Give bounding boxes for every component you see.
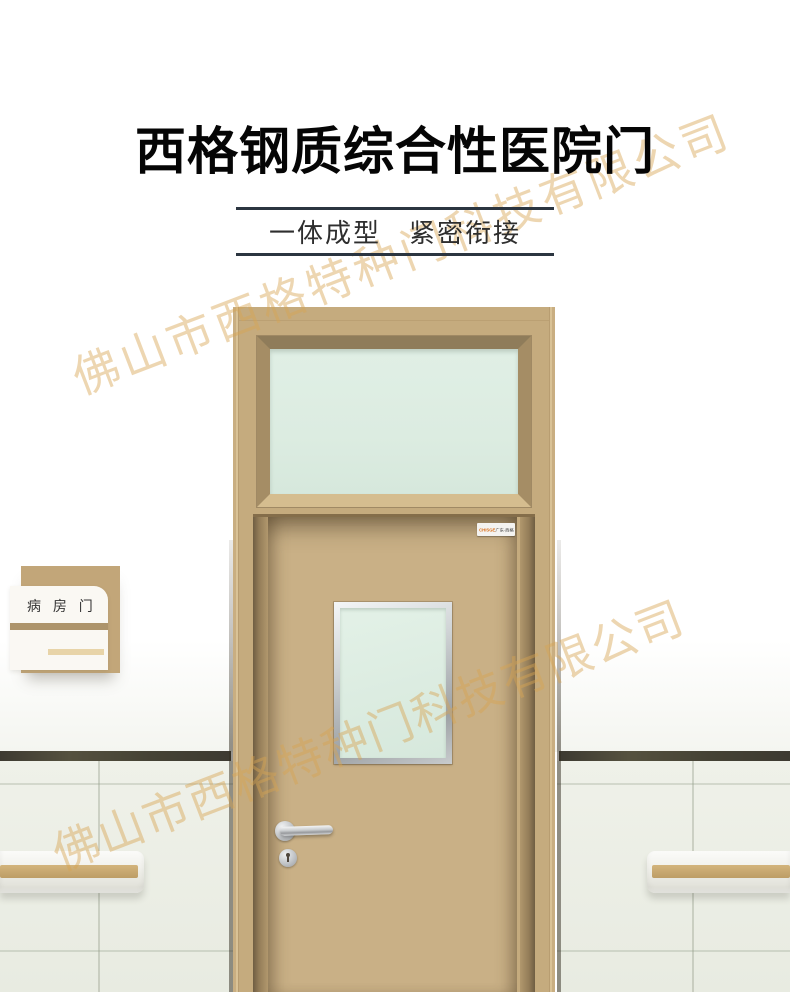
brand-plate-row: CHISGE广东·西格 bbox=[479, 523, 514, 534]
door-frame-wall-shadow-right bbox=[557, 540, 561, 992]
grout-line-horizontal bbox=[0, 950, 233, 952]
lock-escutcheon bbox=[279, 849, 297, 867]
transom-window-frame bbox=[257, 336, 531, 507]
page-canvas: 病 房 门 CHISGE广东·西格 ······· 佛山市西格特种门科技有限公司… bbox=[0, 0, 790, 992]
handrail-stripe bbox=[0, 865, 138, 878]
page-title: 西格钢质综合性医院门 bbox=[0, 110, 790, 184]
handrail-stripe bbox=[652, 865, 790, 878]
keyhole-icon bbox=[286, 853, 290, 857]
brand-plate: CHISGE广东·西格 ······· bbox=[477, 523, 515, 536]
door-jamb-left bbox=[253, 517, 268, 992]
wall-trim-band-left bbox=[0, 751, 231, 761]
door-jamb-right bbox=[520, 517, 535, 992]
wall-trim-band-right bbox=[559, 751, 790, 761]
ward-sign-stripe-light bbox=[48, 649, 104, 655]
door-handle-lever bbox=[280, 825, 333, 836]
ward-sign-label: 病 房 门 bbox=[27, 596, 107, 616]
wall-handrail-right bbox=[647, 851, 790, 893]
wall-handrail-left bbox=[0, 851, 144, 893]
vision-panel-glass bbox=[340, 608, 446, 758]
hospital-door-assembly: CHISGE广东·西格 ······· bbox=[233, 307, 555, 992]
brand-logo: CHISGE bbox=[479, 528, 495, 533]
subtitle-banner: 一体成型 紧密衔接 bbox=[236, 207, 554, 256]
brand-region-text: 广东·西格 bbox=[495, 528, 513, 533]
subtitle-text: 一体成型 紧密衔接 bbox=[269, 213, 521, 250]
grout-line-horizontal bbox=[0, 783, 233, 785]
grout-line-horizontal bbox=[557, 783, 790, 785]
ward-sign-stripe-dark bbox=[10, 623, 108, 630]
frame-groove bbox=[239, 320, 549, 321]
grout-line-horizontal bbox=[557, 950, 790, 952]
transom-window-glass bbox=[270, 349, 518, 494]
vision-panel-frame bbox=[334, 602, 452, 764]
